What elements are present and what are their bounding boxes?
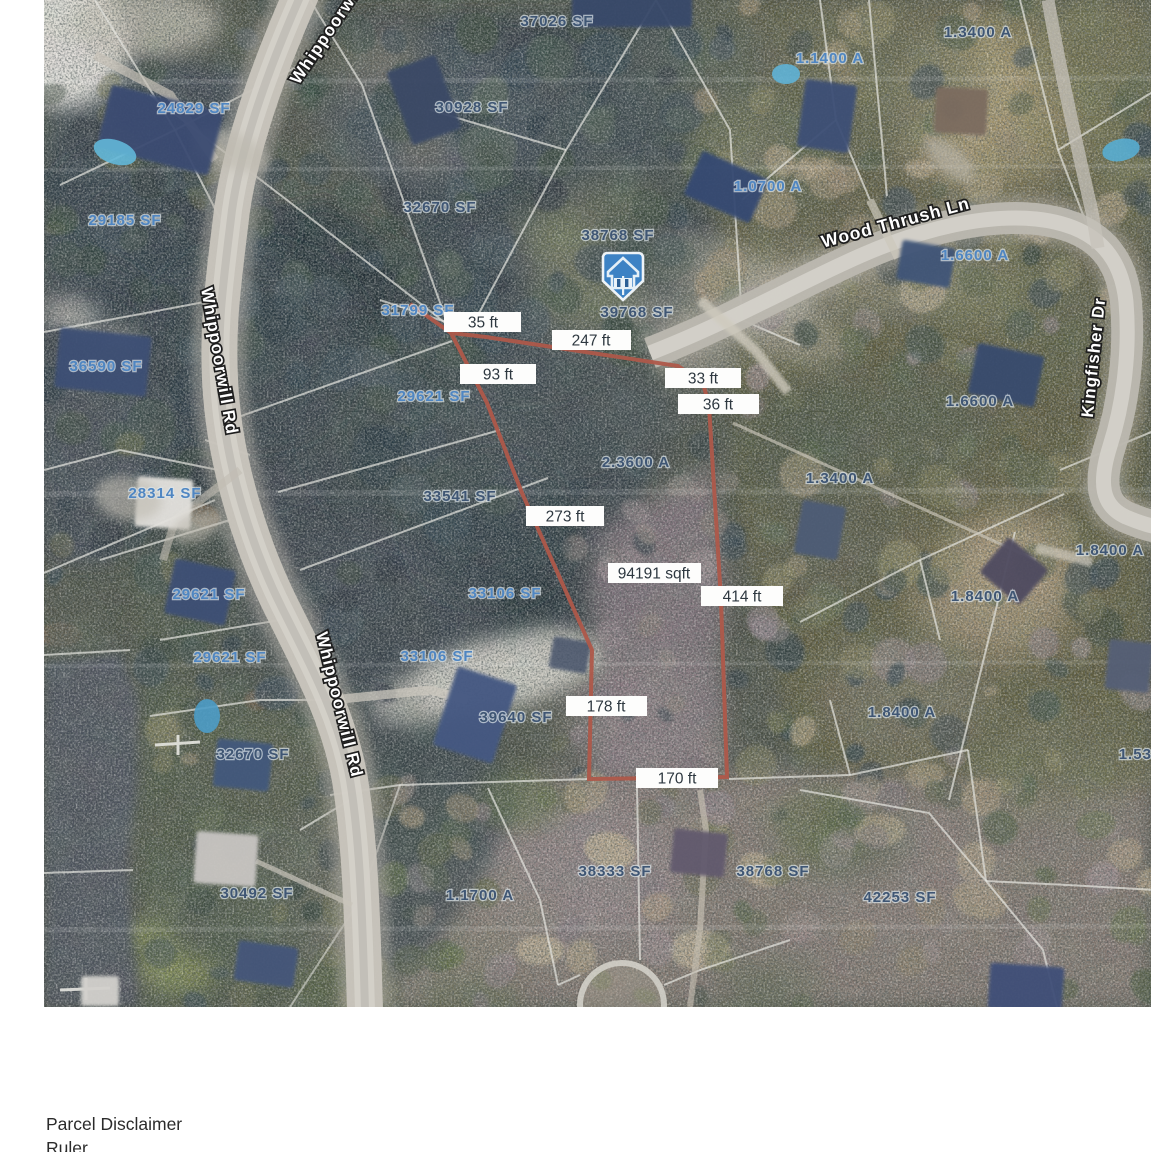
svg-text:36590 SF: 36590 SF	[69, 358, 142, 375]
svg-text:1.3400 A: 1.3400 A	[806, 470, 874, 487]
svg-text:38333 SF: 38333 SF	[578, 863, 651, 880]
svg-text:38768 SF: 38768 SF	[736, 863, 809, 880]
svg-text:30492 SF: 30492 SF	[220, 885, 293, 902]
svg-text:33106 SF: 33106 SF	[400, 648, 473, 665]
svg-text:1.8400 A: 1.8400 A	[1076, 542, 1144, 559]
svg-text:247 ft: 247 ft	[572, 333, 611, 350]
svg-text:28314 SF: 28314 SF	[128, 485, 201, 502]
svg-text:32670 SF: 32670 SF	[216, 746, 289, 763]
svg-text:178 ft: 178 ft	[587, 699, 626, 716]
svg-text:1.1400 A: 1.1400 A	[796, 50, 864, 67]
svg-text:32670 SF: 32670 SF	[403, 199, 476, 216]
svg-text:1.3400 A: 1.3400 A	[944, 24, 1012, 41]
svg-text:42253 SF: 42253 SF	[863, 889, 936, 906]
svg-text:2.3600 A: 2.3600 A	[602, 454, 670, 471]
svg-text:33541 SF: 33541 SF	[423, 488, 496, 505]
svg-text:35 ft: 35 ft	[468, 315, 499, 332]
svg-text:94191 sqft: 94191 sqft	[618, 566, 691, 583]
svg-text:1.8400 A: 1.8400 A	[868, 704, 936, 721]
svg-text:170 ft: 170 ft	[658, 771, 697, 788]
svg-text:24829 SF: 24829 SF	[157, 100, 230, 117]
svg-text:36 ft: 36 ft	[703, 397, 734, 414]
svg-text:39640 SF: 39640 SF	[479, 709, 552, 726]
svg-text:Parcel Disclaimer: Parcel Disclaimer	[46, 1114, 182, 1134]
svg-text:1.1700 A: 1.1700 A	[446, 887, 514, 904]
svg-text:1.8400 A: 1.8400 A	[951, 588, 1019, 605]
svg-text:273 ft: 273 ft	[546, 509, 585, 526]
svg-text:37026 SF: 37026 SF	[520, 13, 593, 30]
svg-text:1.6600 A: 1.6600 A	[946, 393, 1014, 410]
svg-text:39768 SF: 39768 SF	[600, 304, 673, 321]
svg-text:33106 SF: 33106 SF	[468, 585, 541, 602]
svg-text:414 ft: 414 ft	[723, 589, 762, 606]
svg-text:29621 SF: 29621 SF	[193, 649, 266, 666]
svg-text:1.6600 A: 1.6600 A	[941, 247, 1009, 264]
svg-text:Ruler: Ruler	[46, 1138, 88, 1152]
svg-text:31799 SF: 31799 SF	[381, 302, 454, 319]
svg-text:1.0700 A: 1.0700 A	[734, 178, 802, 195]
svg-text:29185 SF: 29185 SF	[88, 212, 161, 229]
svg-text:29621 SF: 29621 SF	[397, 388, 470, 405]
svg-text:1.530: 1.530	[1119, 746, 1156, 763]
svg-text:29621 SF: 29621 SF	[172, 586, 245, 603]
svg-text:30928 SF: 30928 SF	[435, 99, 508, 116]
svg-text:93 ft: 93 ft	[483, 367, 514, 384]
svg-text:38768 SF: 38768 SF	[581, 227, 654, 244]
svg-text:33 ft: 33 ft	[688, 371, 719, 388]
